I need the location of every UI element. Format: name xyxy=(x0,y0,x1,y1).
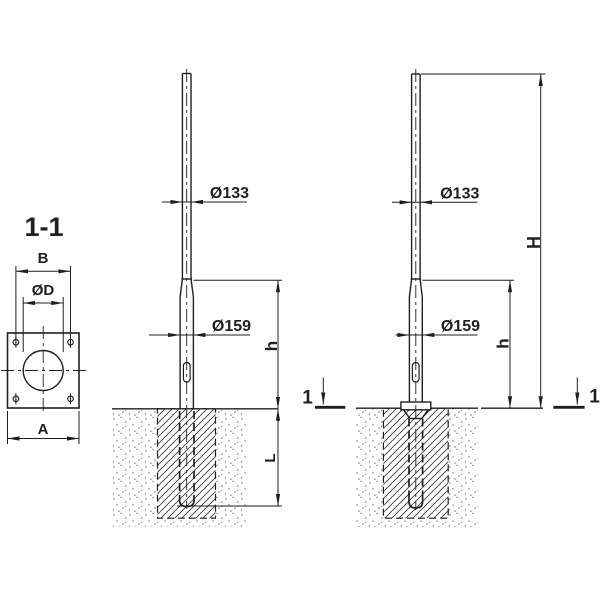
section-cut-label: 1 xyxy=(302,388,313,409)
dim-l-label: L xyxy=(262,453,279,462)
section-cut-marker-right: 1 xyxy=(553,378,600,408)
dimension-dia-base: Ø159 xyxy=(149,318,251,335)
dim-total-height-label: H xyxy=(524,236,544,249)
dimension-h: h xyxy=(422,280,514,408)
technical-drawing-canvas: 1-1 B ØD xyxy=(0,0,600,600)
section-cut-marker-left: 1 xyxy=(302,378,345,409)
pole-drawing-svg: 1-1 B ØD xyxy=(0,0,600,600)
section-view-1-1: 1-1 B ØD xyxy=(1,212,86,444)
dimension-h: h xyxy=(193,280,282,409)
dimension-dia-top: Ø133 xyxy=(392,185,479,202)
plate-centerlines xyxy=(1,326,86,415)
dim-label-b: B xyxy=(38,250,49,267)
dimension-od: ØD xyxy=(23,282,63,352)
dim-h-label: h xyxy=(493,338,512,348)
dim-h-label: h xyxy=(262,341,281,351)
section-view-title: 1-1 xyxy=(24,212,63,242)
dia-top-label: Ø133 xyxy=(210,185,249,202)
dim-label-od: ØD xyxy=(32,282,55,299)
dia-base-label: Ø159 xyxy=(441,318,480,335)
dimension-total-height: H xyxy=(421,74,546,408)
dim-label-a: A xyxy=(38,421,49,438)
section-cut-label: 1 xyxy=(589,387,600,408)
dimension-a: A xyxy=(8,411,80,444)
dimension-dia-top: Ø133 xyxy=(162,185,249,202)
elevation-flanged-pole: Ø133 Ø159 h H xyxy=(302,69,600,527)
dia-base-label: Ø159 xyxy=(212,318,251,335)
dimension-dia-base: Ø159 xyxy=(396,318,481,335)
elevation-buried-pole: Ø133 Ø159 h L xyxy=(112,69,282,527)
dia-top-label: Ø133 xyxy=(440,185,479,202)
